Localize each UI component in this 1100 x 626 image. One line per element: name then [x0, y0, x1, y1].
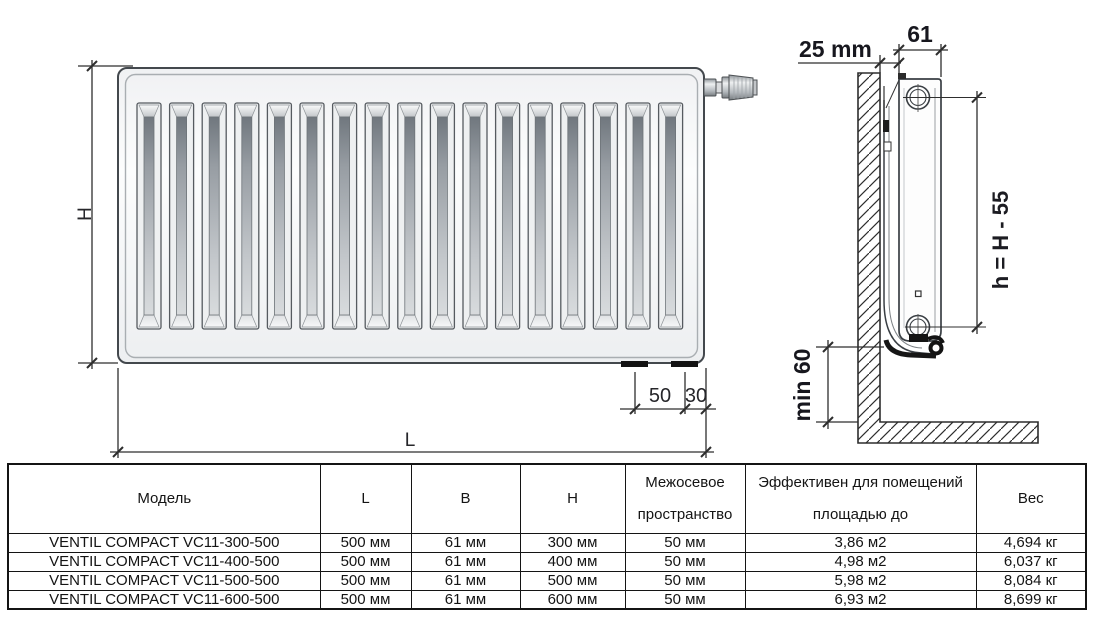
cell-h: 300 мм — [520, 533, 625, 552]
table-row: VENTIL COMPACT VC11-400-500 500 мм 61 мм… — [8, 552, 1086, 571]
front-view-drawing: H L 50 30 — [75, 60, 757, 458]
technical-drawing: H L 50 30 — [0, 0, 1100, 462]
col-header-weight: Вес — [976, 464, 1086, 533]
col-header-effective: Эффективен для помещений площадью до — [745, 464, 976, 533]
cell-spacing: 50 мм — [625, 533, 745, 552]
cell-l: 500 мм — [320, 552, 411, 571]
radiator-fins — [137, 103, 683, 329]
dim-label-50: 50 — [649, 385, 671, 407]
cell-weight: 8,084 кг — [976, 571, 1086, 590]
spec-table: Модель L B H Межосевое пространство Эффе… — [7, 463, 1087, 610]
cell-effective: 4,98 м2 — [745, 552, 976, 571]
cell-h: 500 мм — [520, 571, 625, 590]
cell-l: 500 мм — [320, 533, 411, 552]
col-header-h: H — [520, 464, 625, 533]
dim-label-axis-height: h = H - 55 — [988, 191, 1013, 289]
col-header-b: B — [411, 464, 520, 533]
col-header-effective-line1: Эффективен для помещений — [748, 467, 974, 499]
thermostatic-valve — [704, 75, 757, 100]
cell-weight: 6,037 кг — [976, 552, 1086, 571]
col-header-effective-line2: площадью до — [748, 499, 974, 531]
cell-b: 61 мм — [411, 552, 520, 571]
cell-effective: 6,93 м2 — [745, 590, 976, 609]
cell-b: 61 мм — [411, 571, 520, 590]
cell-b: 61 мм — [411, 533, 520, 552]
table-row: VENTIL COMPACT VC11-300-500 500 мм 61 мм… — [8, 533, 1086, 552]
cell-weight: 8,699 кг — [976, 590, 1086, 609]
radiator-side-view — [883, 73, 943, 356]
cell-l: 500 мм — [320, 571, 411, 590]
dim-label-height: H — [75, 207, 96, 221]
cell-spacing: 50 мм — [625, 571, 745, 590]
dim-label-30: 30 — [685, 385, 707, 407]
dim-label-wall-gap: 25 mm — [799, 36, 872, 62]
table-row: VENTIL COMPACT VC11-600-500 500 мм 61 мм… — [8, 590, 1086, 609]
dim-label-floor-clearance: min 60 — [789, 349, 815, 422]
radiator-spec-sheet: H L 50 30 — [0, 0, 1100, 626]
cell-model: VENTIL COMPACT VC11-400-500 — [8, 552, 320, 571]
cell-weight: 4,694 кг — [976, 533, 1086, 552]
dim-label-length: L — [405, 430, 416, 451]
cell-effective: 5,98 м2 — [745, 571, 976, 590]
cell-spacing: 50 мм — [625, 552, 745, 571]
table-header-row: Модель L B H Межосевое пространство Эффе… — [8, 464, 1086, 533]
cell-l: 500 мм — [320, 590, 411, 609]
cell-spacing: 50 мм — [625, 590, 745, 609]
col-header-spacing-line1: Межосевое — [628, 467, 743, 499]
cell-model: VENTIL COMPACT VC11-500-500 — [8, 571, 320, 590]
col-header-l: L — [320, 464, 411, 533]
dim-label-depth: 61 — [907, 21, 933, 47]
cell-effective: 3,86 м2 — [745, 533, 976, 552]
cell-h: 400 мм — [520, 552, 625, 571]
col-header-model: Модель — [8, 464, 320, 533]
cell-model: VENTIL COMPACT VC11-600-500 — [8, 590, 320, 609]
side-view-drawing: 25 mm 61 h = H - 55 — [789, 21, 1038, 443]
table-row: VENTIL COMPACT VC11-500-500 500 мм 61 мм… — [8, 571, 1086, 590]
cell-h: 600 мм — [520, 590, 625, 609]
col-header-spacing-line2: пространство — [628, 499, 743, 531]
col-header-spacing: Межосевое пространство — [625, 464, 745, 533]
cell-b: 61 мм — [411, 590, 520, 609]
cell-model: VENTIL COMPACT VC11-300-500 — [8, 533, 320, 552]
